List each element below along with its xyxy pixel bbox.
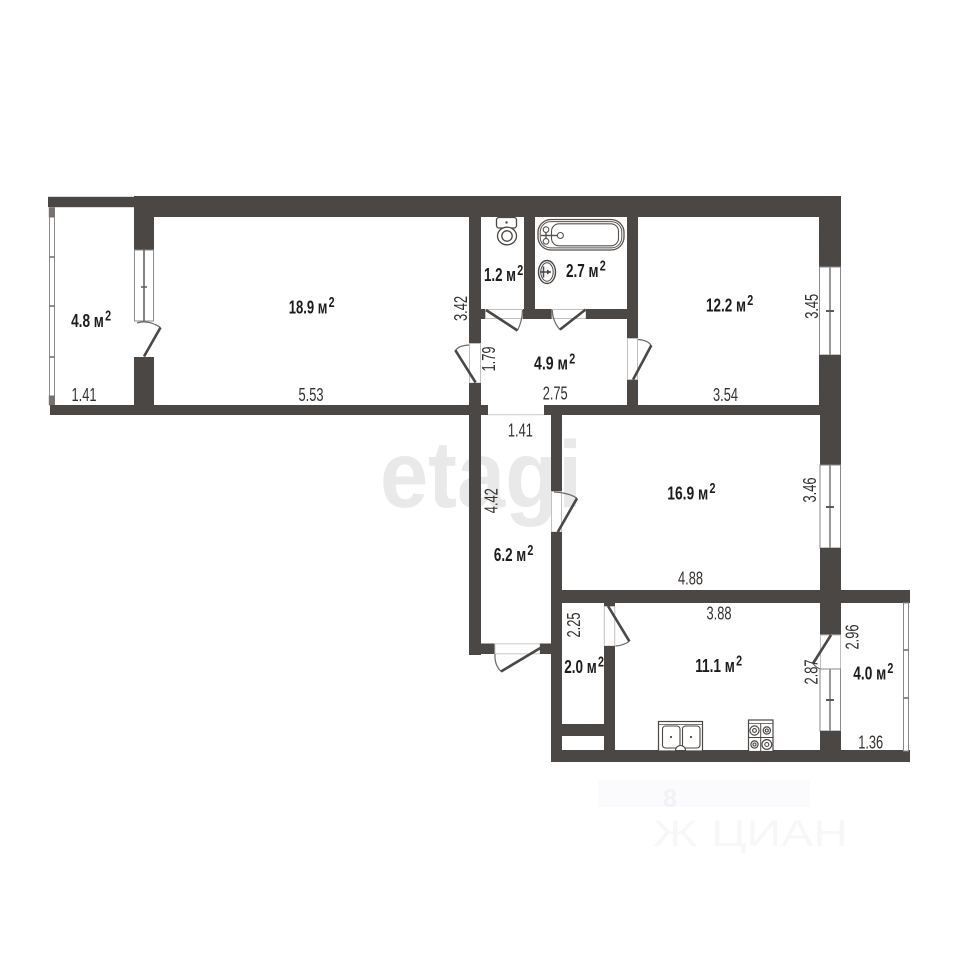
- svg-text:2: 2: [517, 263, 523, 279]
- svg-text:2: 2: [105, 309, 111, 325]
- svg-text:1.2 м: 1.2 м: [484, 264, 516, 285]
- svg-text:2: 2: [569, 351, 575, 367]
- svg-text:1.41: 1.41: [508, 420, 533, 440]
- svg-text:12.2 м: 12.2 м: [706, 294, 746, 315]
- svg-text:4.88: 4.88: [678, 569, 703, 589]
- svg-text:3.46: 3.46: [800, 478, 820, 503]
- svg-text:4.8 м: 4.8 м: [71, 310, 104, 331]
- svg-text:2: 2: [598, 655, 604, 671]
- svg-text:2.25: 2.25: [564, 613, 584, 638]
- svg-text:2: 2: [329, 295, 335, 311]
- svg-text:11.1 м: 11.1 м: [695, 655, 735, 676]
- svg-text:4.0 м: 4.0 м: [853, 662, 886, 683]
- svg-text:1.41: 1.41: [72, 385, 97, 405]
- svg-text:2: 2: [710, 481, 716, 497]
- svg-text:16.9 м: 16.9 м: [667, 482, 708, 503]
- svg-text:2: 2: [527, 543, 533, 559]
- svg-text:2.96: 2.96: [843, 625, 863, 650]
- svg-text:3.54: 3.54: [713, 385, 738, 405]
- svg-text:2.87: 2.87: [802, 660, 822, 685]
- svg-text:6.2 м: 6.2 м: [494, 544, 526, 565]
- svg-text:2.7 м: 2.7 м: [566, 260, 599, 281]
- svg-text:3.45: 3.45: [802, 294, 822, 319]
- svg-text:Ж ЦИАН: Ж ЦИАН: [653, 813, 848, 854]
- svg-text:8: 8: [663, 785, 677, 813]
- svg-text:1.79: 1.79: [479, 347, 499, 372]
- svg-text:4.42: 4.42: [481, 488, 501, 513]
- svg-text:2: 2: [747, 293, 753, 309]
- svg-text:18.9 м: 18.9 м: [289, 296, 328, 317]
- svg-text:2: 2: [736, 654, 742, 670]
- svg-text:4.9 м: 4.9 м: [534, 353, 568, 374]
- svg-text:2: 2: [600, 259, 606, 275]
- svg-text:3.88: 3.88: [707, 603, 732, 623]
- svg-text:2.75: 2.75: [543, 384, 568, 404]
- svg-text:5.53: 5.53: [299, 385, 324, 405]
- svg-text:2.0 м: 2.0 м: [564, 656, 597, 677]
- svg-text:2: 2: [887, 661, 893, 677]
- svg-text:1.36: 1.36: [858, 733, 883, 753]
- svg-text:3.42: 3.42: [451, 296, 471, 321]
